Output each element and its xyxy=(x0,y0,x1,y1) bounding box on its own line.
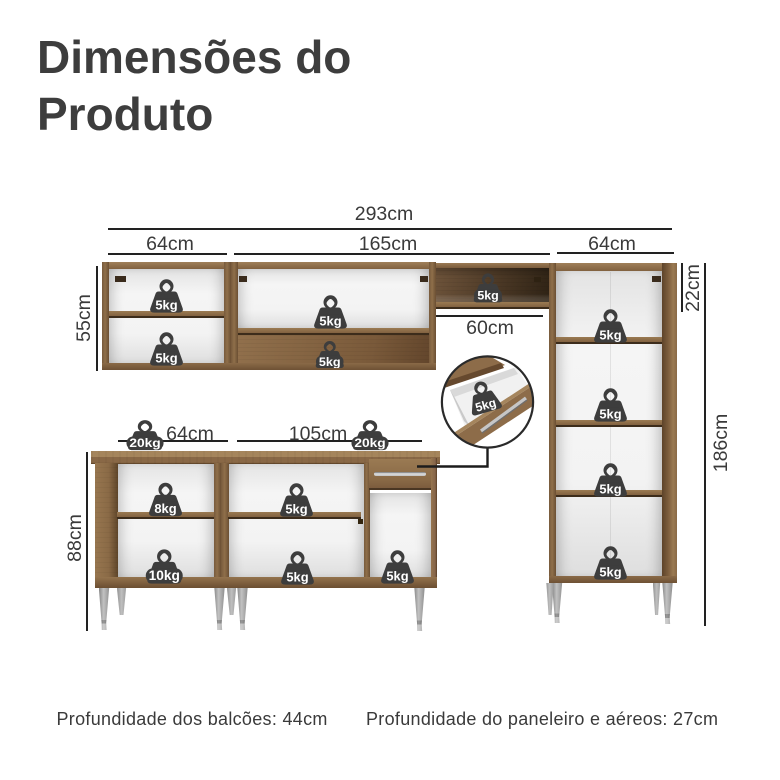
svg-text:5kg: 5kg xyxy=(599,406,621,421)
svg-text:5kg: 5kg xyxy=(286,569,308,584)
svg-text:5kg: 5kg xyxy=(319,313,341,328)
svg-text:5kg: 5kg xyxy=(319,355,341,368)
svg-text:5kg: 5kg xyxy=(599,481,621,496)
svg-text:5kg: 5kg xyxy=(155,350,177,365)
svg-text:8kg: 8kg xyxy=(154,501,176,516)
svg-text:5kg: 5kg xyxy=(155,297,177,312)
svg-text:20kg: 20kg xyxy=(129,436,160,450)
svg-text:10kg: 10kg xyxy=(149,568,180,583)
svg-text:5kg: 5kg xyxy=(477,289,498,303)
svg-text:5kg: 5kg xyxy=(285,501,307,516)
svg-text:5kg: 5kg xyxy=(599,327,621,342)
svg-text:5kg: 5kg xyxy=(599,564,621,579)
svg-text:5kg: 5kg xyxy=(386,568,408,583)
svg-text:20kg: 20kg xyxy=(354,436,385,450)
